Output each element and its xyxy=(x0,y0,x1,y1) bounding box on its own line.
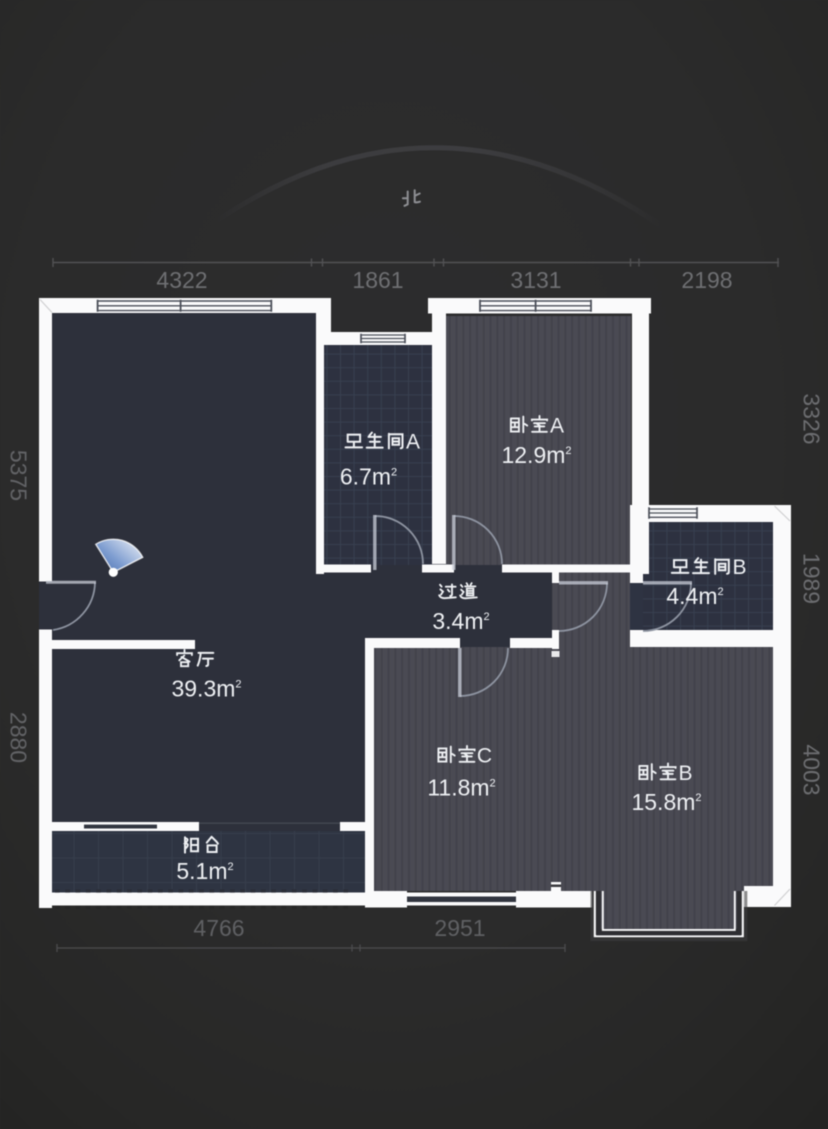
svg-text:4322: 4322 xyxy=(156,267,207,293)
svg-text:6.7m2: 6.7m2 xyxy=(340,464,397,490)
svg-text:2880: 2880 xyxy=(6,712,32,763)
svg-text:2198: 2198 xyxy=(681,267,732,293)
svg-text:2951: 2951 xyxy=(434,915,485,941)
svg-text:5375: 5375 xyxy=(6,450,32,501)
svg-text:A: A xyxy=(550,415,564,438)
svg-text:4.4m2: 4.4m2 xyxy=(666,583,723,609)
svg-text:C: C xyxy=(477,745,492,768)
svg-text:39.3m2: 39.3m2 xyxy=(171,676,241,702)
svg-text:11.8m2: 11.8m2 xyxy=(427,775,495,801)
svg-text:3.4m2: 3.4m2 xyxy=(432,608,489,634)
svg-text:12.9m2: 12.9m2 xyxy=(501,442,571,468)
svg-text:B: B xyxy=(678,762,692,785)
svg-text:15.8m2: 15.8m2 xyxy=(631,789,701,815)
svg-text:3326: 3326 xyxy=(799,393,825,444)
svg-text:1861: 1861 xyxy=(352,267,403,293)
svg-text:1989: 1989 xyxy=(799,553,825,604)
svg-text:5.1m2: 5.1m2 xyxy=(176,858,233,884)
svg-text:A: A xyxy=(406,431,420,454)
svg-text:4003: 4003 xyxy=(799,744,825,795)
svg-text:B: B xyxy=(732,556,746,579)
svg-text:3131: 3131 xyxy=(510,267,561,293)
svg-text:4766: 4766 xyxy=(193,915,244,941)
